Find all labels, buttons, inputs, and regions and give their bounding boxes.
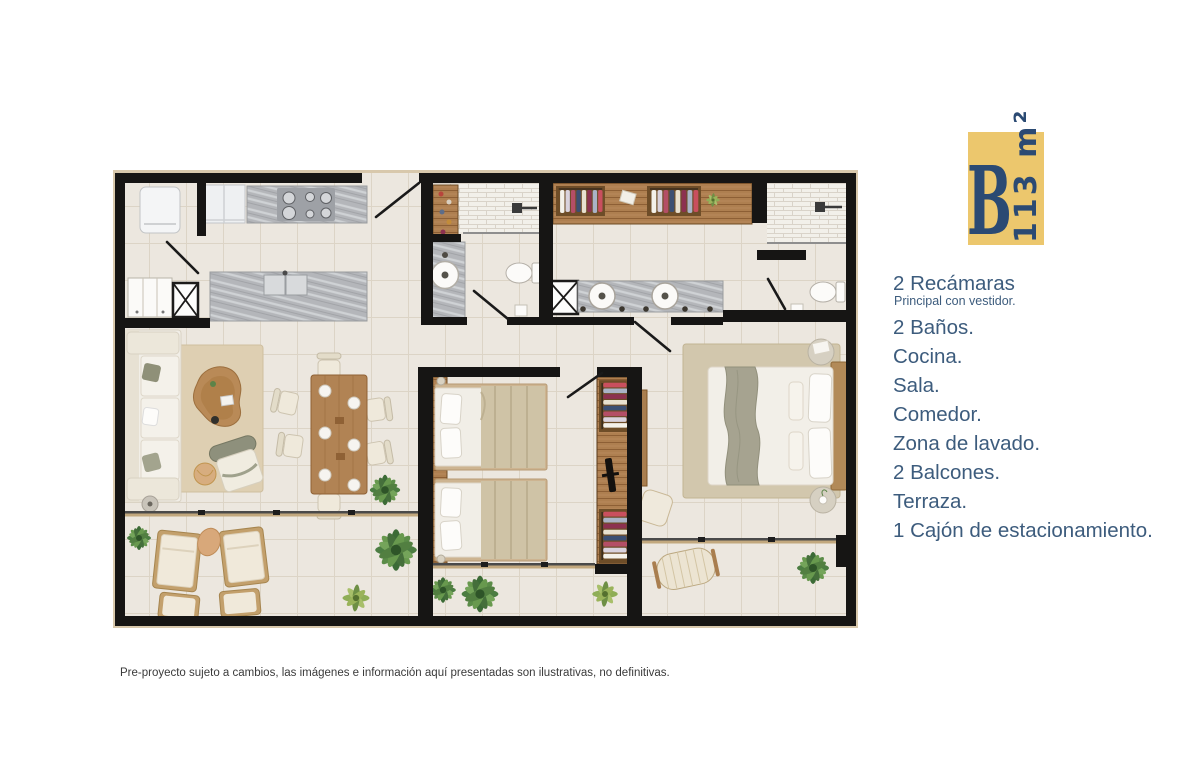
floorplan-image bbox=[113, 170, 858, 628]
bedroom-2 bbox=[433, 377, 631, 564]
master-bed bbox=[708, 362, 847, 490]
feature-item: Sala. bbox=[893, 371, 1183, 400]
twin-bed-2 bbox=[435, 479, 547, 561]
unit-letter: B bbox=[967, 154, 1012, 249]
disclaimer-text: Pre-proyecto sujeto a cambios, las imáge… bbox=[120, 667, 670, 679]
nightstand-top bbox=[808, 339, 834, 365]
sofa bbox=[125, 330, 181, 502]
unit-badge: B 113 m² bbox=[968, 132, 1044, 245]
bed-lamp bbox=[437, 377, 445, 385]
feature-item: 2 Baños. bbox=[893, 313, 1183, 342]
shower-floor-master bbox=[767, 183, 846, 243]
laundry-cabinets bbox=[128, 278, 172, 317]
water-heater bbox=[140, 187, 180, 233]
feature-item: Terraza. bbox=[893, 487, 1183, 516]
feature-item: 1 Cajón de estacionamiento. bbox=[893, 516, 1183, 545]
wardrobe bbox=[597, 377, 631, 564]
unit-area: 113 m² bbox=[1012, 108, 1042, 243]
lounge-chair-2 bbox=[219, 527, 269, 588]
feature-item: Zona de lavado. bbox=[893, 429, 1183, 458]
floorplan-svg bbox=[113, 170, 858, 628]
bed-lamp bbox=[437, 555, 445, 563]
feature-subitem: Principal con vestidor. bbox=[894, 295, 1183, 308]
brochure-page: { "badge": { "letter": "B", "area": "113… bbox=[0, 0, 1200, 778]
lounge-chair-1 bbox=[152, 530, 202, 592]
features-list: 2 Recámaras Principal con vestidor. 2 Ba… bbox=[893, 269, 1183, 545]
feature-item: Cocina. bbox=[893, 342, 1183, 371]
pouf bbox=[194, 463, 216, 485]
cooktop bbox=[277, 188, 335, 221]
feature-item: 2 Balcones. bbox=[893, 458, 1183, 487]
feature-item: Comedor. bbox=[893, 400, 1183, 429]
nightstand-bottom bbox=[810, 487, 836, 513]
twin-bed-1 bbox=[435, 384, 547, 470]
